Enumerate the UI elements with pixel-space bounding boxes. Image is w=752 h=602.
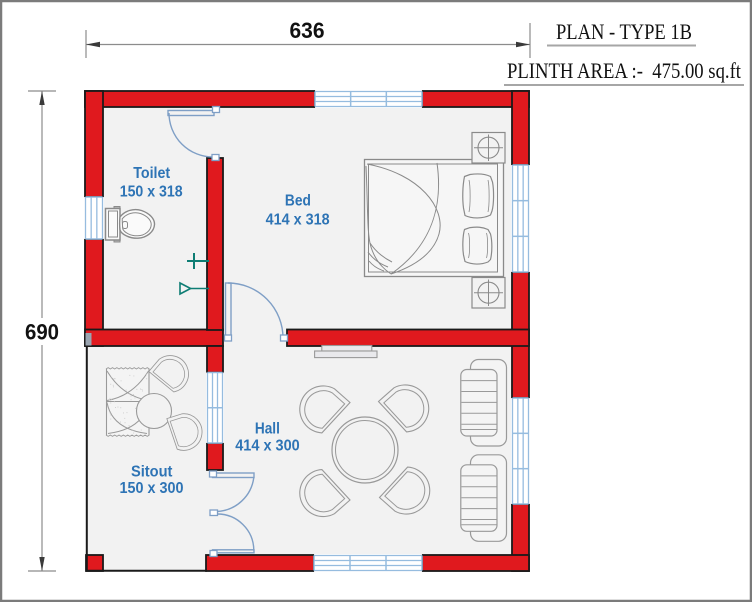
svg-text:Sitout: Sitout <box>131 464 173 481</box>
svg-text:690: 690 <box>25 320 59 345</box>
svg-text:414 x 318: 414 x 318 <box>266 212 330 229</box>
svg-text:150 x 318: 150 x 318 <box>120 184 183 201</box>
svg-text:636: 636 <box>290 18 325 43</box>
svg-text:150 x 300: 150 x 300 <box>120 480 184 497</box>
svg-text:PLAN - TYPE 1B: PLAN - TYPE 1B <box>556 19 692 44</box>
svg-text:PLINTH AREA :- 475.00 sq.ft: PLINTH AREA :- 475.00 sq.ft <box>507 58 741 83</box>
svg-text:Bed: Bed <box>285 193 311 210</box>
svg-text:414 x 300: 414 x 300 <box>235 438 300 455</box>
svg-text:Hall: Hall <box>255 420 280 437</box>
svg-text:Toilet: Toilet <box>133 165 170 182</box>
